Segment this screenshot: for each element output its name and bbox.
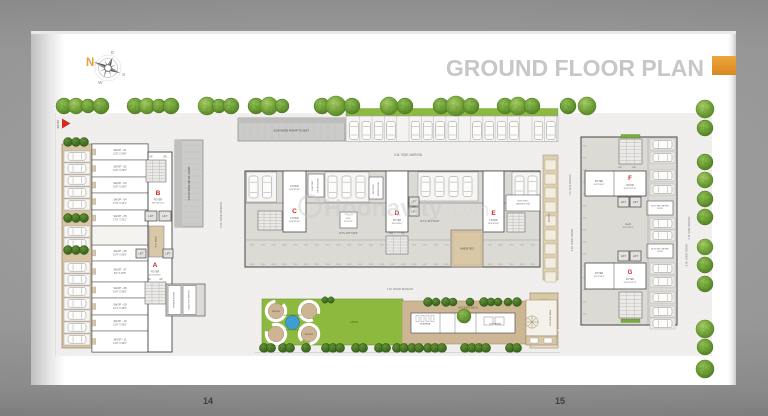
- svg-text:SOFT FLOORING: SOFT FLOORING: [286, 330, 300, 332]
- svg-text:LIFT: LIFT: [148, 214, 154, 218]
- svg-text:N: N: [86, 57, 94, 69]
- svg-text:E: E: [491, 210, 496, 217]
- svg-text:DN: DN: [389, 233, 393, 235]
- svg-text:R.T.S. 25’1″X12’9″: R.T.S. 25’1″X12’9″: [339, 233, 358, 235]
- svg-text:34’6″X8’10″: 34’6″X8’10″: [392, 223, 403, 225]
- svg-text:Hoonavity: Hoonavity: [324, 195, 443, 222]
- svg-text:26’0″X8’10″: 26’0″X8’10″: [289, 189, 300, 191]
- svg-text:UP: UP: [149, 157, 153, 159]
- svg-text:C: C: [292, 208, 297, 215]
- svg-text:FOYER: FOYER: [151, 271, 160, 274]
- svg-text:6 M. WIDE MARGIN: 6 M. WIDE MARGIN: [219, 202, 223, 227]
- svg-text:10’4" X 26’5": 10’4" X 26’5": [113, 253, 127, 256]
- svg-text:4.50 M WIDE METAL RAMP: 4.50 M WIDE METAL RAMP: [187, 166, 191, 200]
- svg-text:FOYER: FOYER: [595, 272, 604, 275]
- svg-text:SEATING: SEATING: [272, 310, 281, 313]
- svg-text:FOYER: FOYER: [489, 219, 498, 222]
- svg-text:LIFT: LIFT: [621, 254, 627, 258]
- svg-text:10’0" X 26’5": 10’0" X 26’5": [113, 290, 127, 293]
- svg-text:KIDS PLAY AREA WITH: KIDS PLAY AREA WITH: [283, 314, 302, 317]
- svg-text:1 M. ROAD MARGIN: 1 M. ROAD MARGIN: [387, 287, 413, 291]
- svg-text:20’10″X12’11″: 20’10″X12’11″: [624, 188, 637, 190]
- svg-text:FOYER: FOYER: [595, 180, 604, 183]
- svg-text:LIFT: LIFT: [633, 200, 639, 204]
- svg-text:14: 14: [203, 396, 213, 406]
- svg-text:ROOM: ROOM: [657, 208, 663, 210]
- svg-text:20’0″X10’10″: 20’0″X10’10″: [152, 203, 165, 205]
- svg-text:1 M. SIDE MARGIN: 1 M. SIDE MARGIN: [569, 174, 572, 195]
- svg-text:10’0" X 26’5": 10’0" X 26’5": [113, 169, 127, 172]
- svg-text:34’6″X8’10″: 34’6″X8’10″: [488, 223, 499, 225]
- svg-text:G+22: G+22: [625, 223, 632, 226]
- svg-text:10’9″X20’0″: 10’9″X20’0″: [594, 276, 605, 278]
- svg-text:METER ROOM: METER ROOM: [318, 178, 320, 192]
- svg-text:W: W: [98, 80, 103, 86]
- svg-text:LIFT: LIFT: [621, 200, 627, 204]
- svg-text:3 M. SIDE MARGIN: 3 M. SIDE MARGIN: [687, 216, 691, 239]
- svg-text:9 M. WIDE ROAD: 9 M. WIDE ROAD: [685, 244, 689, 266]
- svg-text:10’1" X 26’5": 10’1" X 26’5": [113, 307, 127, 310]
- svg-text:UP: UP: [159, 279, 163, 281]
- svg-text:FOYER: FOYER: [290, 217, 299, 220]
- svg-text:DN: DN: [147, 279, 151, 281]
- svg-text:ROOM: ROOM: [626, 184, 633, 187]
- svg-text:9’0" X 26’5": 9’0" X 26’5": [114, 272, 126, 275]
- svg-text:FOYER: FOYER: [290, 185, 299, 188]
- svg-text:10’0" X 26’5": 10’0" X 26’5": [113, 185, 127, 188]
- svg-text:F: F: [628, 176, 632, 182]
- svg-text:S: S: [122, 72, 125, 78]
- svg-text:LIFT: LIFT: [633, 254, 639, 258]
- svg-text:W.S. AREA: W.S. AREA: [155, 236, 158, 248]
- svg-text:UP: UP: [618, 167, 622, 169]
- svg-text:DN: DN: [163, 157, 167, 159]
- svg-text:34’6″X8’10″: 34’6″X8’10″: [289, 221, 300, 223]
- svg-text:FOYER: FOYER: [626, 278, 635, 281]
- svg-text:METER ROOM: METER ROOM: [378, 182, 380, 196]
- svg-text:8.50 WIDE RAMP TO BST: 8.50 WIDE RAMP TO BST: [274, 129, 310, 133]
- svg-text:AMENITIES: AMENITIES: [460, 247, 474, 251]
- svg-text:15: 15: [555, 396, 565, 406]
- svg-text:11’0" X 24’6": 11’0" X 24’6": [113, 152, 127, 155]
- svg-text:A: A: [153, 262, 158, 269]
- svg-text:17’0" X 23’1": 17’0" X 23’1": [113, 218, 127, 221]
- svg-text:.com: .com: [448, 200, 489, 221]
- svg-text:32’1″X31’3″: 32’1″X31’3″: [623, 227, 634, 229]
- svg-text:ROOM: ROOM: [657, 251, 663, 253]
- svg-text:LAWN: LAWN: [350, 320, 359, 324]
- svg-text:ELECTRIC: ELECTRIC: [312, 180, 314, 190]
- svg-text:ENTRY: ENTRY: [56, 119, 60, 128]
- svg-text:G: G: [628, 270, 633, 276]
- svg-text:13’0" X 26’0": 13’0" X 26’0": [113, 323, 127, 326]
- svg-text:ELECTRIC METER: ELECTRIC METER: [189, 290, 191, 310]
- svg-text:METER ROOM: METER ROOM: [516, 203, 529, 205]
- svg-text:SPA AREA: SPA AREA: [420, 323, 431, 326]
- svg-text:GROUND FLOOR PLAN: GROUND FLOOR PLAN: [446, 55, 704, 81]
- svg-text:3 M. SIDE MARGIN: 3 M. SIDE MARGIN: [394, 153, 423, 157]
- svg-text:20’0″X23’11″: 20’0″X23’11″: [149, 275, 162, 277]
- svg-text:E: E: [111, 50, 114, 56]
- svg-text:FOYER: FOYER: [154, 199, 163, 202]
- svg-text:LIFT: LIFT: [165, 252, 171, 256]
- svg-text:B: B: [156, 190, 161, 197]
- svg-text:17’6" X 23’1": 17’6" X 23’1": [113, 202, 127, 205]
- svg-text:SHOPS: SHOPS: [548, 213, 551, 222]
- svg-text:6 M. WIDE ROAD: 6 M. WIDE ROAD: [570, 229, 574, 251]
- svg-text:DN: DN: [632, 167, 636, 169]
- svg-text:10’9″X20’0″: 10’9″X20’0″: [594, 184, 605, 186]
- svg-text:ELECTRIC: ELECTRIC: [518, 201, 529, 203]
- svg-text:WOODEN DECK: WOODEN DECK: [458, 306, 478, 310]
- svg-text:SEATING: SEATING: [305, 333, 314, 336]
- svg-text:UP: UP: [401, 233, 405, 235]
- svg-text:ELECTRIC: ELECTRIC: [373, 183, 375, 193]
- svg-text:LIFT: LIFT: [162, 214, 168, 218]
- svg-text:LIFT: LIFT: [138, 252, 144, 256]
- svg-text:KIDS PLAY AREA: KIDS PLAY AREA: [549, 309, 552, 326]
- svg-text:20’10″X12’11″: 20’10″X12’11″: [624, 282, 637, 284]
- svg-text:13’0" X 26’0": 13’0" X 26’0": [113, 342, 127, 345]
- svg-text:POWER ROOM: POWER ROOM: [174, 292, 176, 308]
